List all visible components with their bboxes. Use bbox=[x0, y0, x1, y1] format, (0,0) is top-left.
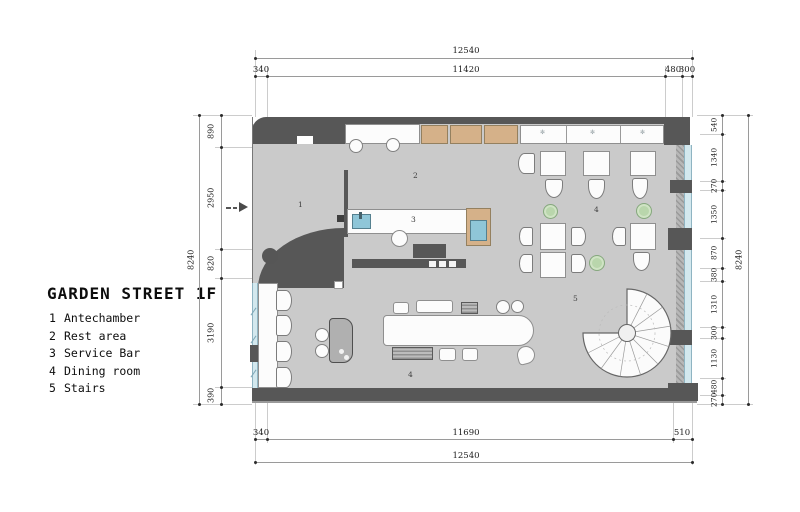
chair bbox=[519, 227, 533, 246]
dim-tick bbox=[220, 114, 223, 117]
dimension-line bbox=[199, 115, 200, 404]
dim-tick bbox=[747, 114, 750, 117]
entrance-arrow-dash bbox=[226, 207, 231, 209]
dining-table bbox=[540, 223, 566, 250]
long-table bbox=[383, 315, 534, 346]
dining-table bbox=[540, 252, 566, 278]
windowsill-plant-icon: ✻ bbox=[590, 130, 595, 136]
banquette-bench bbox=[258, 283, 278, 388]
legend-item: 3Service Bar bbox=[49, 345, 140, 363]
dim-label: 510 bbox=[664, 429, 700, 438]
dim-tick bbox=[266, 75, 269, 78]
dim-label: 300 bbox=[669, 66, 705, 75]
room-label-antechamber: 1 bbox=[298, 201, 303, 209]
legend-num: 5 bbox=[49, 380, 64, 398]
dim-tick bbox=[721, 394, 724, 397]
dim-tick bbox=[721, 180, 724, 183]
counter-divider bbox=[566, 126, 567, 143]
counter-divider bbox=[620, 126, 621, 143]
dim-tick bbox=[220, 386, 223, 389]
extension-line bbox=[193, 404, 252, 405]
dim-tick bbox=[721, 326, 724, 329]
dim-label: 300 bbox=[708, 327, 720, 338]
dimension-line bbox=[255, 76, 692, 77]
dim-tick bbox=[254, 57, 257, 60]
dim-label: 11690 bbox=[436, 429, 496, 438]
spiral-stair bbox=[581, 287, 673, 379]
chair bbox=[612, 227, 626, 246]
dim-tick bbox=[721, 280, 724, 283]
plant-icon bbox=[589, 255, 605, 271]
wall-top bbox=[345, 117, 690, 124]
room-label-rest-area: 2 bbox=[413, 172, 418, 180]
dim-label: 1130 bbox=[708, 338, 720, 378]
chair bbox=[462, 348, 478, 361]
stool bbox=[315, 344, 329, 358]
dim-label: 270 bbox=[708, 181, 720, 190]
dining-table bbox=[540, 151, 566, 176]
dim-tick bbox=[691, 461, 694, 464]
dim-tick bbox=[220, 277, 223, 280]
bench-seat bbox=[276, 290, 292, 311]
equipment-unit bbox=[429, 261, 436, 267]
bench-seat bbox=[276, 341, 292, 362]
dim-tick bbox=[254, 75, 257, 78]
legend-item: 5Stairs bbox=[49, 380, 140, 398]
cabinet-wood bbox=[484, 125, 518, 144]
extension-line bbox=[692, 50, 693, 117]
chair bbox=[393, 302, 409, 314]
dim-label: 870 bbox=[708, 238, 720, 268]
cabinet-wood bbox=[421, 125, 448, 144]
dim-label: 380 bbox=[708, 268, 720, 281]
plant-icon bbox=[543, 204, 558, 219]
dim-tick bbox=[691, 438, 694, 441]
windowsill-plant-icon: ✻ bbox=[640, 130, 645, 136]
dim-label: 890 bbox=[205, 115, 217, 147]
dim-tick bbox=[721, 114, 724, 117]
dim-label: 1350 bbox=[708, 190, 720, 238]
mullion-block bbox=[670, 330, 692, 345]
dim-label: 12540 bbox=[436, 47, 496, 56]
dim-tick bbox=[721, 337, 724, 340]
dining-table bbox=[630, 151, 656, 176]
dim-tick bbox=[198, 403, 201, 406]
door-handle bbox=[337, 215, 344, 222]
dim-tick bbox=[721, 267, 724, 270]
dim-tick bbox=[266, 438, 269, 441]
basin bbox=[391, 230, 408, 247]
dim-label: 820 bbox=[205, 249, 217, 278]
legend-num: 2 bbox=[49, 328, 64, 346]
legend: 1Antechamber 2Rest area 3Service Bar 4Di… bbox=[49, 310, 140, 398]
faucet-icon bbox=[359, 212, 362, 219]
windowsill-plant-icon: ✻ bbox=[540, 130, 545, 136]
bar-equipment bbox=[413, 244, 446, 258]
legend-label: Stairs bbox=[64, 381, 106, 395]
bar-stool bbox=[386, 138, 400, 152]
stool bbox=[511, 300, 524, 313]
chair bbox=[571, 227, 586, 246]
equipment-unit bbox=[439, 261, 446, 267]
dim-label: 8240 bbox=[733, 115, 745, 404]
upholstered-bench bbox=[392, 347, 433, 360]
table-dot bbox=[339, 349, 344, 354]
dim-tick bbox=[691, 75, 694, 78]
legend-num: 1 bbox=[49, 310, 64, 328]
chair bbox=[571, 254, 586, 273]
mullion-block bbox=[668, 228, 692, 250]
dim-label: 1340 bbox=[708, 134, 720, 181]
dimension-line bbox=[722, 115, 723, 404]
dim-tick bbox=[747, 403, 750, 406]
dim-tick bbox=[198, 114, 201, 117]
chair bbox=[518, 153, 535, 174]
dim-label: 270 bbox=[708, 395, 720, 404]
dim-tick bbox=[721, 403, 724, 406]
dim-tick bbox=[691, 57, 694, 60]
dim-tick bbox=[254, 461, 257, 464]
dim-tick bbox=[220, 403, 223, 406]
stool bbox=[496, 300, 510, 314]
dim-tick bbox=[681, 75, 684, 78]
equipment-unit bbox=[449, 261, 456, 267]
dim-label: 8240 bbox=[185, 115, 197, 404]
dim-tick bbox=[672, 438, 675, 441]
bench-seat bbox=[276, 367, 292, 388]
dim-label: 3190 bbox=[205, 278, 217, 387]
room-label-dining-2: 4 bbox=[408, 371, 413, 379]
dim-tick bbox=[721, 237, 724, 240]
chair bbox=[439, 348, 456, 361]
room-label-dining: 4 bbox=[594, 206, 599, 214]
legend-item: 1Antechamber bbox=[49, 310, 140, 328]
room-label-stairs: 5 bbox=[573, 295, 578, 303]
dimension-line bbox=[221, 115, 222, 404]
legend-num: 3 bbox=[49, 345, 64, 363]
legend-label: Dining room bbox=[64, 364, 140, 378]
dining-table bbox=[583, 151, 610, 176]
extension-line bbox=[255, 50, 256, 117]
wall-opening bbox=[297, 136, 313, 144]
dim-tick bbox=[220, 146, 223, 149]
wall-left-line bbox=[252, 117, 253, 283]
entrance-arrow-icon bbox=[239, 202, 248, 212]
stool bbox=[315, 328, 329, 342]
dimension-line bbox=[748, 115, 749, 404]
entrance-arrow-dash bbox=[233, 207, 237, 209]
wall-corner-bottom-right bbox=[668, 383, 698, 401]
dim-label: 340 bbox=[243, 66, 279, 75]
wall-bottom-shadow bbox=[252, 401, 697, 403]
legend-item: 2Rest area bbox=[49, 328, 140, 346]
dimension-line bbox=[255, 439, 692, 440]
upholstered-seat bbox=[461, 302, 478, 314]
dimension-line bbox=[255, 58, 692, 59]
dining-table bbox=[630, 223, 656, 250]
dim-label: 12540 bbox=[436, 452, 496, 461]
mullion-block bbox=[670, 180, 692, 193]
dim-tick bbox=[721, 377, 724, 380]
side-table bbox=[329, 318, 353, 363]
legend-label: Rest area bbox=[64, 329, 126, 343]
sink-icon bbox=[470, 220, 487, 241]
legend-num: 4 bbox=[49, 363, 64, 381]
extension-line bbox=[697, 404, 753, 405]
dim-tick bbox=[220, 248, 223, 251]
bar-stool bbox=[349, 139, 363, 153]
dimension-line bbox=[255, 462, 692, 463]
plant-icon bbox=[636, 203, 652, 219]
round-table bbox=[262, 248, 278, 264]
wall-bottom bbox=[252, 388, 697, 401]
floor-plan-sheet: GARDEN STREET 1F 1Antechamber 2Rest area… bbox=[0, 0, 800, 512]
bench-seat bbox=[276, 315, 292, 336]
dim-tick bbox=[254, 438, 257, 441]
legend-label: Service Bar bbox=[64, 346, 140, 360]
extension-line bbox=[193, 115, 252, 116]
dim-label: 340 bbox=[243, 429, 279, 438]
dim-label: 1310 bbox=[708, 281, 720, 327]
dim-tick bbox=[721, 133, 724, 136]
dim-tick bbox=[721, 189, 724, 192]
bench bbox=[416, 300, 453, 313]
cabinet-wood bbox=[450, 125, 482, 144]
legend-label: Antechamber bbox=[64, 311, 140, 325]
chair bbox=[519, 254, 533, 273]
door-stop bbox=[334, 281, 343, 289]
wall-corner-top-right bbox=[664, 117, 690, 145]
dim-label: 390 bbox=[205, 387, 217, 404]
dim-label: 540 bbox=[708, 115, 720, 134]
table-dot bbox=[344, 355, 349, 360]
legend-item: 4Dining room bbox=[49, 363, 140, 381]
room-label-service-bar: 3 bbox=[411, 216, 416, 224]
dim-label: 2950 bbox=[205, 147, 217, 249]
dim-tick bbox=[664, 75, 667, 78]
dim-label: 11420 bbox=[436, 66, 496, 75]
